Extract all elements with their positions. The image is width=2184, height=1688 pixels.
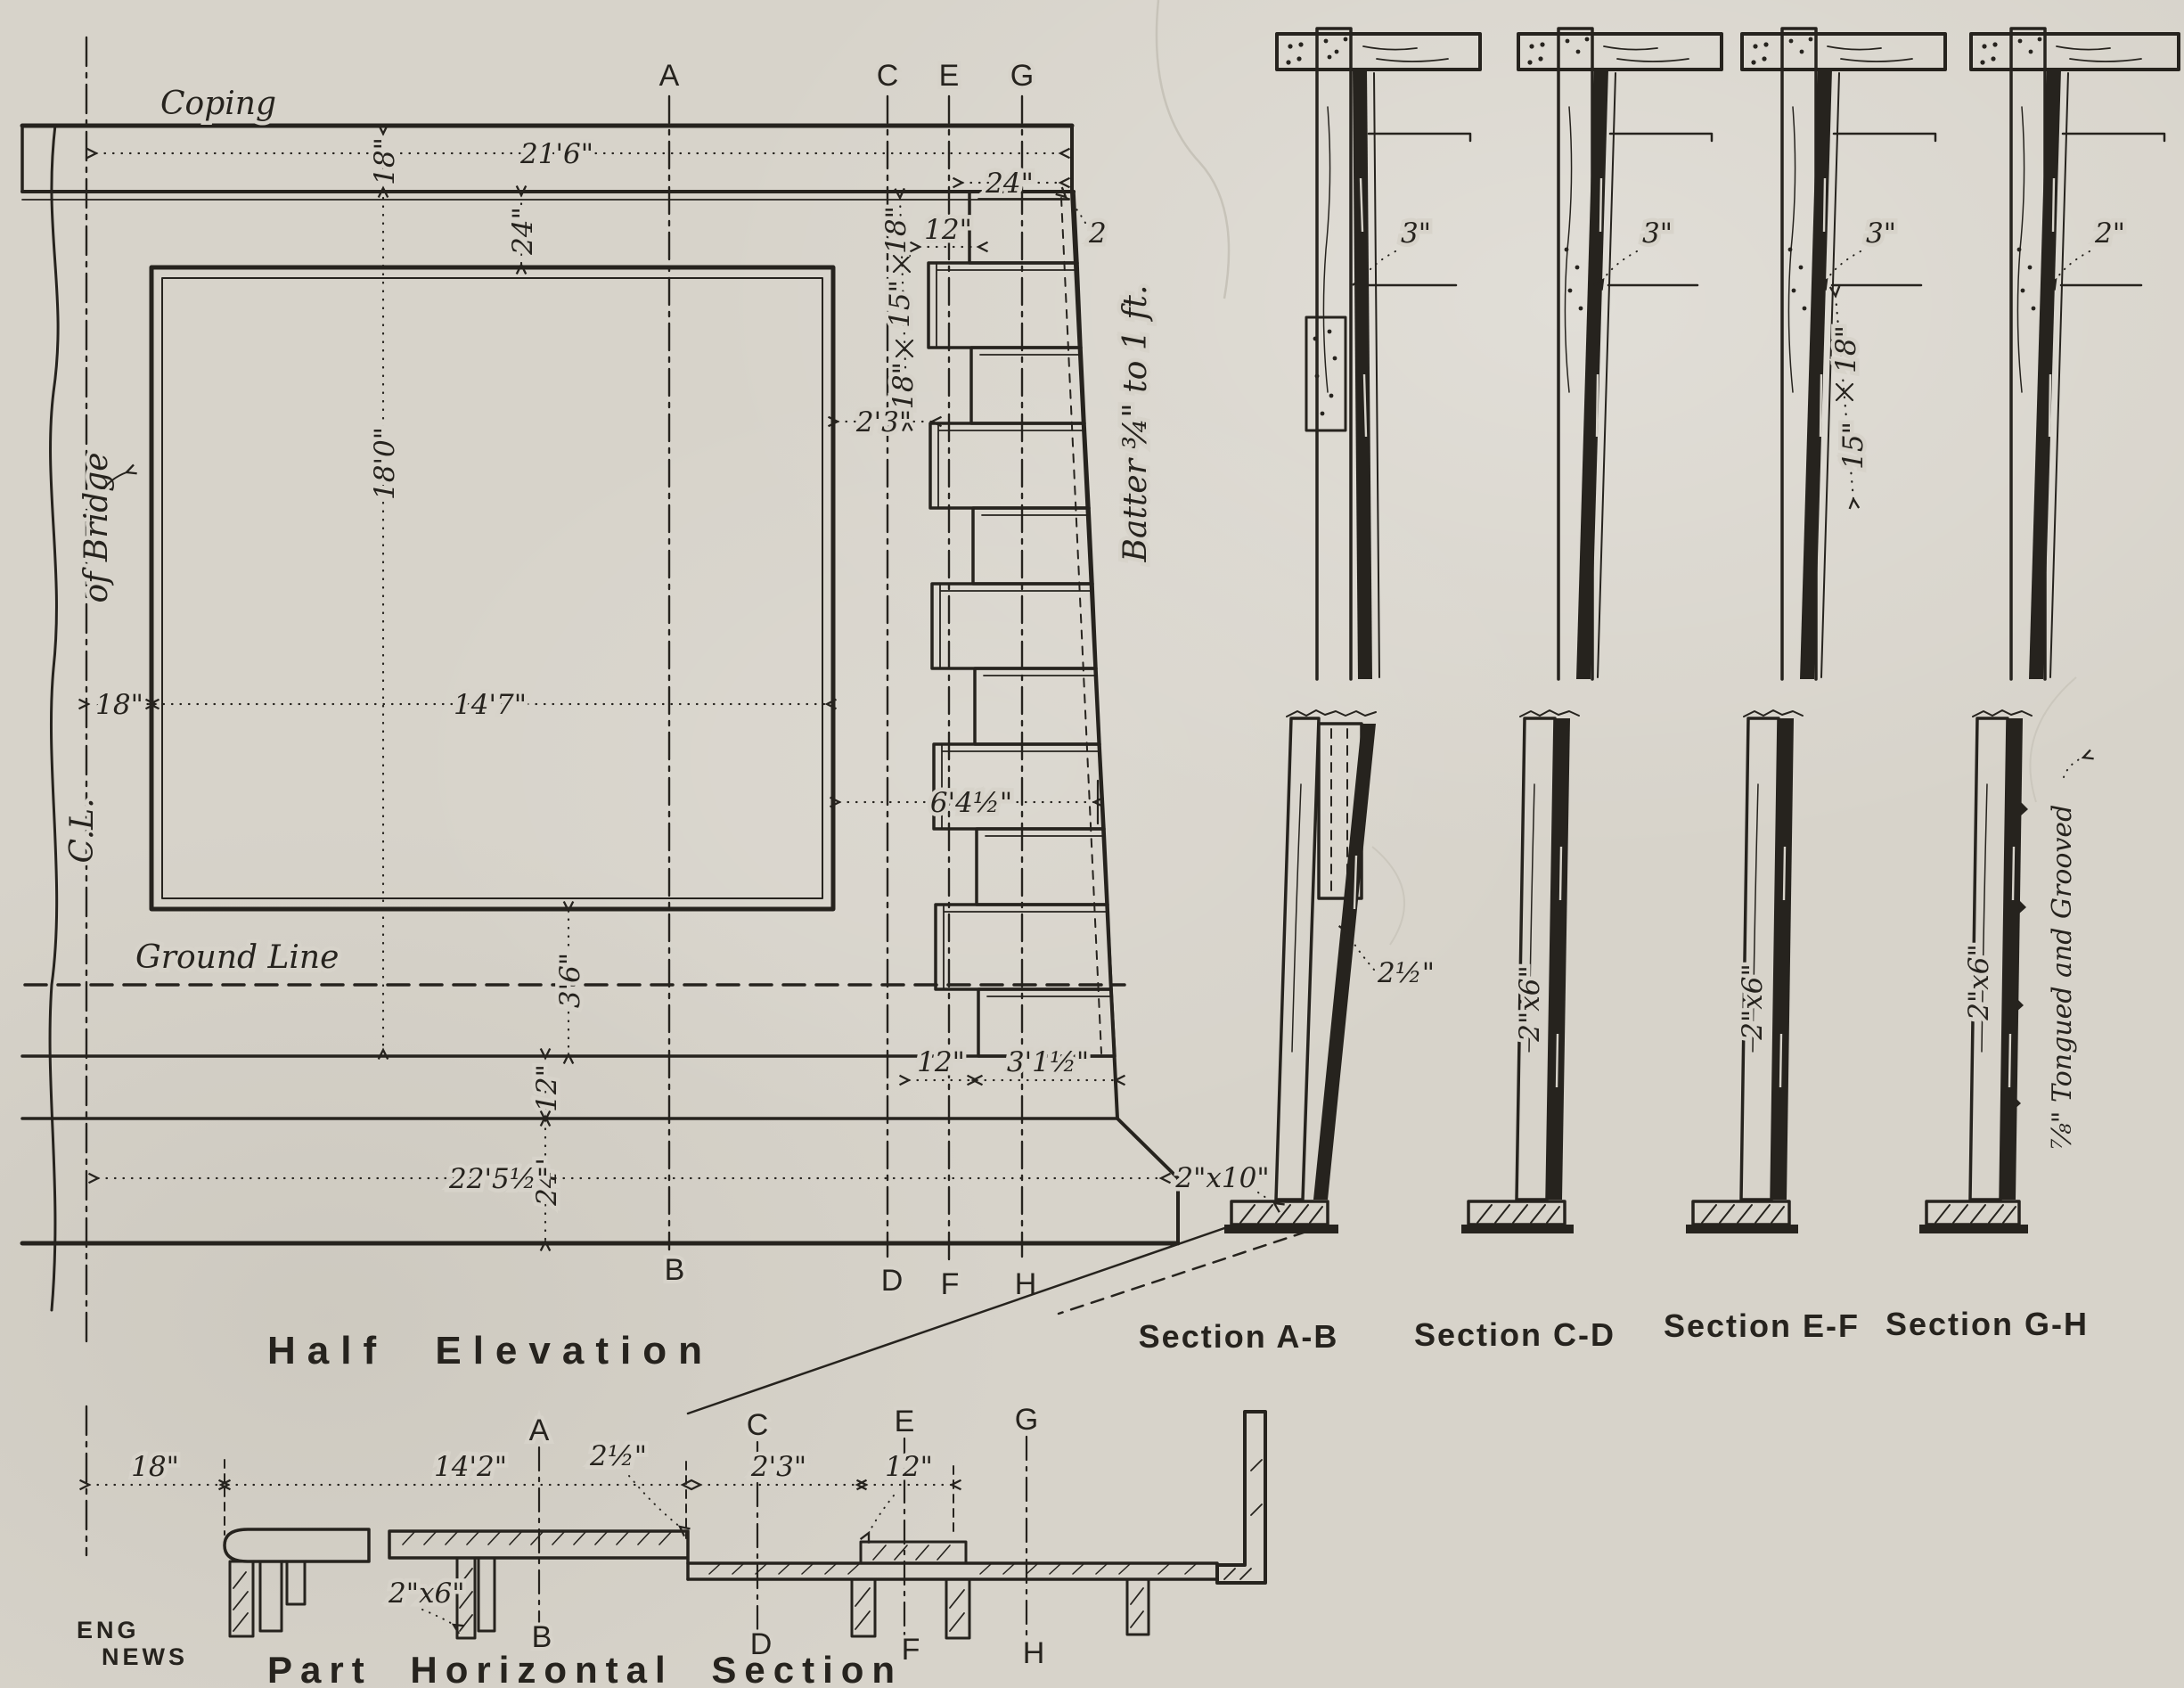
letter-plan-h: H (1023, 1636, 1045, 1670)
footing-sill (1693, 1201, 1789, 1225)
section-ab-title: Section A-B (1139, 1318, 1339, 1355)
dim-coping-to-panel: 24" (507, 207, 539, 256)
footing-sill (1231, 1201, 1328, 1225)
letter-elev-e: E (939, 59, 960, 93)
dim-gh-plank-gap: 2" (2094, 217, 2125, 250)
dim-plan-stud: 2"x6" (388, 1577, 464, 1610)
dim-board3: 18" (888, 362, 920, 410)
dim-ef-plank-gap: 3" (1866, 217, 1896, 250)
letter-plan-f: F (902, 1633, 920, 1667)
dim-coping-height: 18" (369, 137, 401, 185)
label-of-bridge: of Bridge (78, 452, 115, 602)
dim-panel-to-base: 3'6" (554, 953, 586, 1008)
lower-stud (1276, 718, 1319, 1200)
dim-mid-width: 6'4½" (930, 787, 1012, 819)
section-cd: 3" 2"x6" Section C-D (1414, 29, 1722, 1353)
lower-sheathing (1313, 724, 1376, 1200)
letter-elev-a: A (659, 59, 680, 93)
footing-sill (1468, 1201, 1565, 1225)
sheathing-strip (2029, 70, 2061, 679)
plan-wall-right (688, 1563, 1217, 1579)
drawing-canvas: A C E G B D F H 21'6" 18" 24" 24" 2 18" … (0, 0, 2184, 1688)
section-gh-title: Section G-H (1885, 1306, 2089, 1342)
dim-cd-plank-gap: 3" (1642, 217, 1673, 250)
plan-corner-wale (225, 1529, 369, 1561)
wall-outline (22, 37, 1178, 1341)
section-ef: 3" 18" 15" 2"x6" Section E-F (1664, 29, 1945, 1344)
sheathing-strip (1353, 70, 1372, 679)
dim-ab-plank-gap: 3" (1401, 217, 1431, 250)
dim-top-step: 2 (1088, 217, 1107, 250)
dim-coping-length: 21'6" (519, 138, 593, 170)
dim-board1: 18" (880, 206, 912, 254)
section-ab: 3" 2½" 2"x10" Section A-B (688, 29, 1480, 1413)
concrete-lines (1832, 134, 1935, 285)
plan-title: Part Horizontal Section (267, 1649, 903, 1688)
dim-base-toe: 3'1½" (1007, 1046, 1089, 1078)
engineering-drawing-sheet: A C E G B D F H 21'6" 18" 24" 24" 2 18" … (0, 0, 2184, 1688)
top-wale (1971, 34, 2179, 70)
break-line (50, 125, 58, 1310)
letter-plan-c: C (747, 1408, 769, 1442)
dim-board2: 15" (884, 280, 916, 328)
dim-ef-space2: 15" (1837, 422, 1869, 470)
letter-elev-c: C (877, 59, 899, 93)
sheathing-strip (1576, 70, 1608, 679)
dim-cl-to-panel: 18" (95, 689, 143, 721)
letter-plan-g: G (1015, 1403, 1038, 1437)
label-coping: Coping (160, 86, 276, 122)
dim-panel-width: 14'7" (454, 689, 527, 721)
dim-ef-space1: 18" (1830, 325, 1862, 373)
section-gh: 2" 2"x6" ⅞" Tongued and Grooved Section … (1885, 29, 2179, 1342)
dim-base-offset: 12" (917, 1046, 965, 1078)
plan-view: A C E G B D F H 18" 14'2" 2½" 2'3" 12" 2… (77, 1403, 1265, 1688)
label-gh-sheathing: ⅞" Tongued and Grooved (2047, 805, 2078, 1150)
dim-ab-lap: 2½" (1377, 957, 1435, 989)
dim-board-offset: 12" (924, 214, 972, 246)
dim-ab-sill: 2"x10" (1174, 1162, 1269, 1194)
concrete-lines (2061, 134, 2164, 285)
dim-coping-end: 24" (985, 168, 1034, 200)
dim-plan-cl-offset: 18" (131, 1451, 179, 1483)
dim-base-length: 22'5½" (448, 1163, 549, 1195)
plan-end-corner (1217, 1412, 1265, 1583)
dim-gh-stud: 2"x6" (1963, 944, 1995, 1020)
sheathing-strip (1800, 70, 1832, 679)
half-elevation: A C E G B D F H 21'6" 18" 24" 24" 2 18" … (22, 37, 1178, 1373)
letter-elev-d: D (881, 1264, 904, 1298)
top-wale (1518, 34, 1722, 70)
top-wale (1277, 34, 1480, 70)
letter-elev-f: F (941, 1267, 960, 1301)
paper-creases (1157, 0, 2076, 945)
dim-plan-spacing: 2'3" (750, 1451, 806, 1483)
letter-elev-b: B (665, 1253, 685, 1287)
dim-plan-lap: 2½" (589, 1440, 647, 1472)
dim-wall-height: 18'0" (369, 427, 401, 500)
dim-cd-stud: 2"x6" (1514, 965, 1546, 1042)
label-batter: Batter ¾" to 1 ft. (1117, 285, 1154, 563)
dim-base-course1: 12" (531, 1064, 563, 1112)
concrete-lines (1367, 134, 1470, 285)
section-cd-title: Section C-D (1414, 1316, 1616, 1353)
recessed-panel (151, 267, 833, 909)
concrete-lines (1608, 134, 1712, 285)
credit-line1: ENG (77, 1617, 140, 1643)
elevation-section-lines: A C E G B D F H (659, 59, 1037, 1301)
letter-elev-g: G (1010, 59, 1034, 93)
section-ef-title: Section E-F (1664, 1307, 1860, 1344)
half-elevation-title: Half Elevation (267, 1329, 714, 1373)
dim-ef-stud: 2"x6" (1737, 963, 1769, 1040)
dim-plan-offset: 12" (885, 1451, 933, 1483)
dim-plan-half-length: 14'2" (434, 1451, 507, 1483)
credit-line2: NEWS (102, 1643, 188, 1670)
label-center-line: C.L. (64, 798, 101, 863)
letter-plan-e: E (895, 1405, 915, 1438)
label-ground-line: Ground Line (135, 939, 339, 976)
dim-cleat-spacing: 2'3" (855, 406, 912, 438)
letter-plan-a: A (529, 1413, 550, 1447)
elevation-dimensions: 21'6" 18" 24" 24" 2 18" 15" 18" 12" 2'3"… (88, 134, 1161, 1241)
top-wale (1742, 34, 1945, 70)
